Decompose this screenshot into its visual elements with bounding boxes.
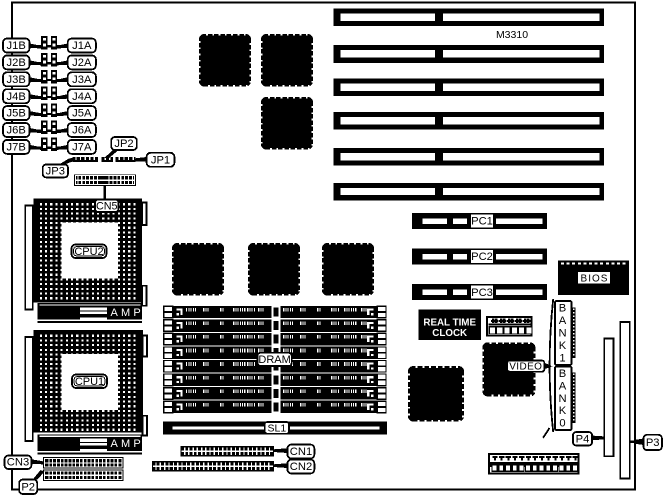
svg-text:K: K [559, 405, 567, 417]
svg-text:JP2: JP2 [114, 138, 133, 150]
svg-text:B: B [559, 368, 566, 380]
svg-text:P3: P3 [646, 437, 660, 449]
svg-text:REAL TIME: REAL TIME [423, 317, 476, 328]
svg-text:JP3: JP3 [46, 165, 65, 177]
svg-text:BIOS: BIOS [581, 273, 609, 284]
svg-text:J6B: J6B [7, 125, 26, 137]
svg-text:PC3: PC3 [471, 287, 493, 299]
svg-text:A: A [559, 380, 567, 392]
svg-text:CN5: CN5 [96, 200, 118, 212]
svg-text:CPU2: CPU2 [74, 246, 103, 258]
svg-text:AMP: AMP [111, 307, 144, 319]
svg-text:K: K [559, 340, 567, 352]
svg-text:M3310: M3310 [496, 29, 528, 41]
svg-text:J5B: J5B [7, 108, 26, 120]
svg-text:J1B: J1B [7, 40, 26, 52]
svg-text:CLOCK: CLOCK [432, 328, 467, 339]
svg-text:CN3: CN3 [7, 457, 29, 469]
svg-text:VIDEO: VIDEO [509, 362, 542, 373]
svg-text:CPU1: CPU1 [75, 376, 104, 388]
svg-text:J3B: J3B [7, 74, 26, 86]
svg-text:J2A: J2A [72, 57, 92, 69]
svg-text:SL1: SL1 [268, 422, 287, 434]
svg-text:0: 0 [559, 418, 565, 430]
svg-text:AMP: AMP [111, 438, 144, 450]
svg-text:PC1: PC1 [471, 216, 493, 228]
svg-text:J5A: J5A [72, 108, 92, 120]
svg-text:N: N [558, 327, 566, 339]
svg-text:J6A: J6A [72, 125, 92, 137]
svg-text:J7B: J7B [7, 142, 26, 154]
svg-text:J7A: J7A [72, 142, 92, 154]
svg-text:P4: P4 [576, 433, 590, 445]
svg-text:JP1: JP1 [151, 154, 170, 166]
svg-text:J1A: J1A [72, 40, 92, 52]
svg-text:CN2: CN2 [290, 461, 312, 473]
svg-text:1: 1 [559, 352, 565, 364]
svg-text:CN1: CN1 [290, 446, 312, 458]
svg-text:DRAM: DRAM [258, 354, 290, 366]
svg-text:J4B: J4B [7, 91, 26, 103]
svg-text:J2B: J2B [7, 57, 26, 69]
svg-text:P2: P2 [21, 481, 35, 493]
svg-text:N: N [558, 393, 566, 405]
svg-text:A: A [559, 315, 567, 327]
svg-text:B: B [559, 303, 566, 315]
svg-text:J3A: J3A [72, 74, 92, 86]
svg-text:PC2: PC2 [471, 251, 493, 263]
svg-text:J4A: J4A [72, 91, 92, 103]
